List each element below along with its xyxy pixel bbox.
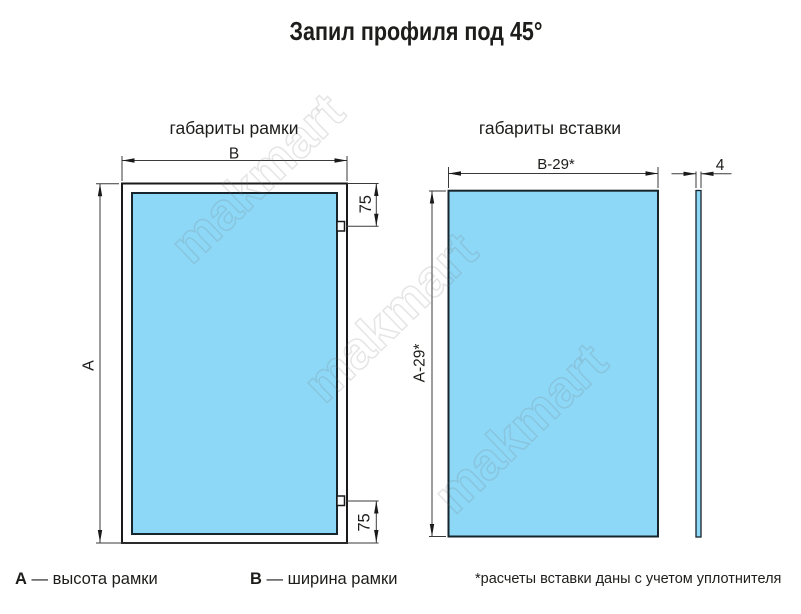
svg-text:A — высота рамки: A — высота рамки [15, 570, 158, 588]
svg-text:4: 4 [716, 157, 725, 174]
svg-text:A: A [81, 360, 98, 371]
svg-text:A-29*: A-29* [412, 344, 429, 383]
svg-text:габариты вставки: габариты вставки [479, 118, 621, 138]
svg-text:75: 75 [356, 513, 374, 531]
svg-text:B — ширина рамки: B — ширина рамки [250, 570, 397, 588]
svg-text:75: 75 [357, 195, 375, 213]
svg-text:*расчеты вставки даны с учетом: *расчеты вставки даны с учетом уплотните… [475, 571, 781, 587]
svg-text:Запил профиля под 45°: Запил профиля под 45° [290, 16, 543, 46]
svg-text:B-29*: B-29* [537, 156, 575, 173]
